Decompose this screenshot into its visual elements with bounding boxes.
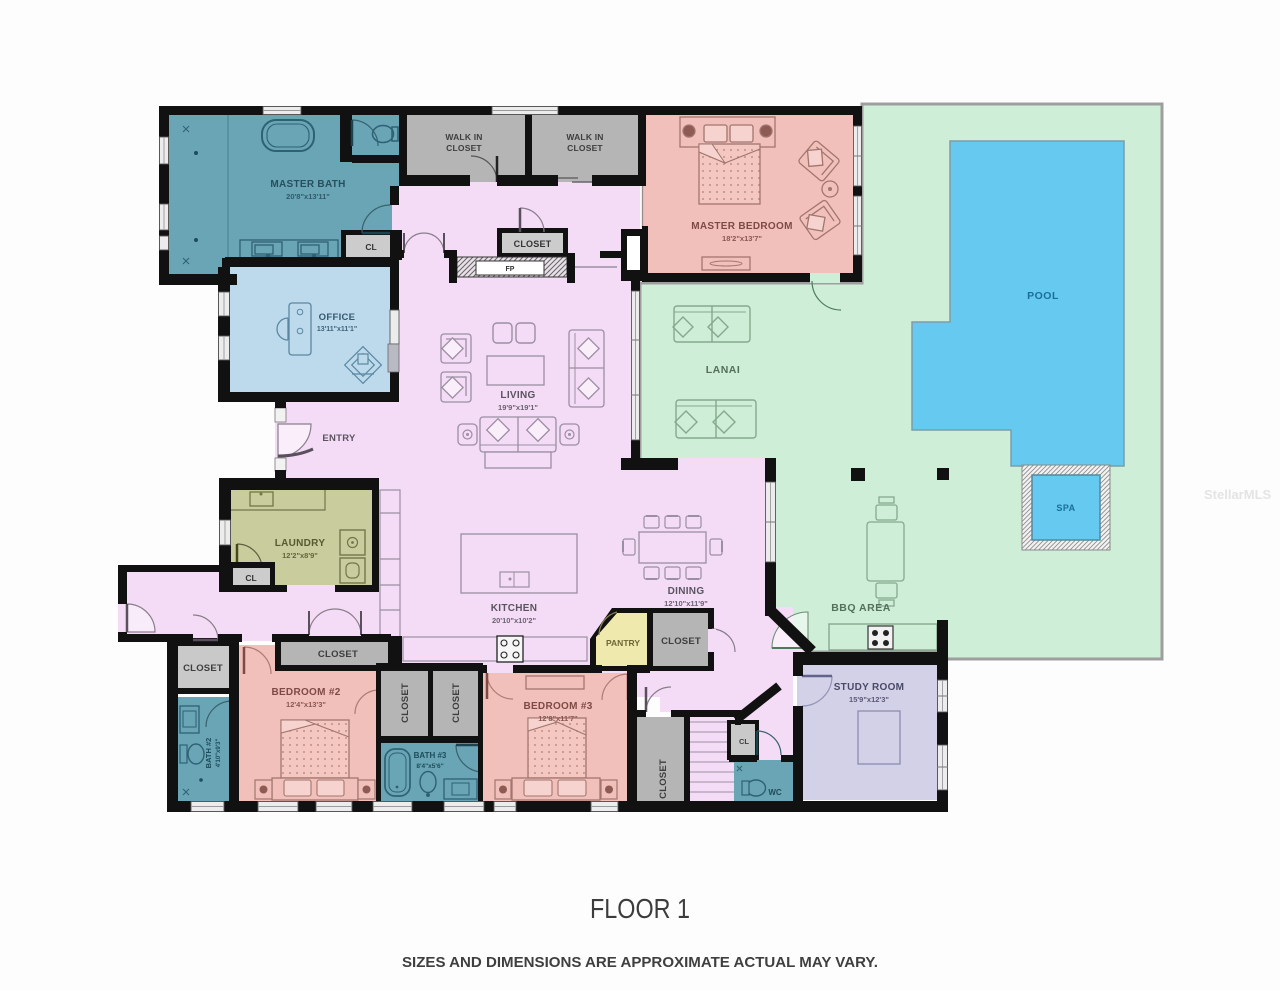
svg-text:20'8"x13'11": 20'8"x13'11" — [286, 192, 330, 201]
svg-text:CL: CL — [245, 573, 256, 583]
svg-text:STUDY ROOM: STUDY ROOM — [834, 682, 905, 693]
svg-text:KITCHEN: KITCHEN — [491, 603, 538, 614]
svg-text:CLOSET: CLOSET — [567, 143, 603, 153]
svg-text:FLOOR 1: FLOOR 1 — [590, 893, 690, 924]
svg-text:LIVING: LIVING — [500, 390, 535, 401]
svg-text:18'2"x13'7": 18'2"x13'7" — [722, 234, 762, 243]
svg-text:CLOSET: CLOSET — [661, 636, 701, 647]
svg-text:CL: CL — [739, 737, 749, 746]
svg-text:BATH #2: BATH #2 — [204, 738, 213, 769]
svg-text:12'2"x8'9": 12'2"x8'9" — [282, 551, 318, 560]
svg-text:SIZES AND DIMENSIONS ARE APPRO: SIZES AND DIMENSIONS ARE APPROXIMATE ACT… — [402, 954, 878, 971]
svg-text:12'8"x11'7": 12'8"x11'7" — [538, 714, 578, 723]
svg-text:LAUNDRY: LAUNDRY — [275, 538, 326, 549]
svg-text:ENTRY: ENTRY — [322, 433, 356, 444]
svg-text:WALK IN: WALK IN — [566, 132, 603, 142]
svg-text:BEDROOM #3: BEDROOM #3 — [523, 701, 592, 712]
svg-text:15'9"x12'3": 15'9"x12'3" — [849, 695, 889, 704]
svg-text:CLOSET: CLOSET — [446, 143, 482, 153]
svg-text:20'10"x10'2": 20'10"x10'2" — [492, 616, 536, 625]
svg-text:CLOSET: CLOSET — [183, 663, 223, 674]
svg-text:PANTRY: PANTRY — [606, 638, 640, 648]
svg-text:MASTER BEDROOM: MASTER BEDROOM — [691, 221, 792, 232]
svg-text:WC: WC — [768, 788, 782, 797]
svg-text:12'4"x13'3": 12'4"x13'3" — [286, 700, 326, 709]
svg-text:DINING: DINING — [668, 586, 705, 597]
svg-text:SPA: SPA — [1056, 503, 1075, 513]
svg-text:CLOSET: CLOSET — [451, 683, 462, 723]
svg-text:CLOSET: CLOSET — [318, 649, 358, 660]
svg-text:WALK IN: WALK IN — [445, 132, 482, 142]
svg-text:CLOSET: CLOSET — [400, 683, 411, 723]
svg-text:MASTER BATH: MASTER BATH — [270, 179, 345, 190]
svg-text:12'10"x11'9": 12'10"x11'9" — [664, 599, 708, 608]
svg-text:4'10"x9'3": 4'10"x9'3" — [216, 739, 222, 768]
svg-text:CLOSET: CLOSET — [658, 759, 669, 799]
svg-text:BATH #3: BATH #3 — [414, 751, 447, 760]
svg-text:LANAI: LANAI — [706, 364, 741, 376]
svg-text:StellarMLS: StellarMLS — [1204, 487, 1272, 502]
svg-text:8'4"x5'6": 8'4"x5'6" — [416, 763, 443, 770]
svg-text:BBQ AREA: BBQ AREA — [831, 602, 891, 614]
svg-text:POOL: POOL — [1027, 290, 1059, 302]
svg-text:CLOSET: CLOSET — [514, 239, 552, 249]
svg-text:BEDROOM #2: BEDROOM #2 — [271, 687, 340, 698]
svg-text:13'11"x11'1": 13'11"x11'1" — [317, 326, 357, 333]
svg-text:FP: FP — [506, 266, 515, 273]
svg-text:CL: CL — [365, 242, 376, 252]
svg-text:OFFICE: OFFICE — [319, 312, 356, 323]
svg-text:19'9"x19'1": 19'9"x19'1" — [498, 403, 538, 412]
